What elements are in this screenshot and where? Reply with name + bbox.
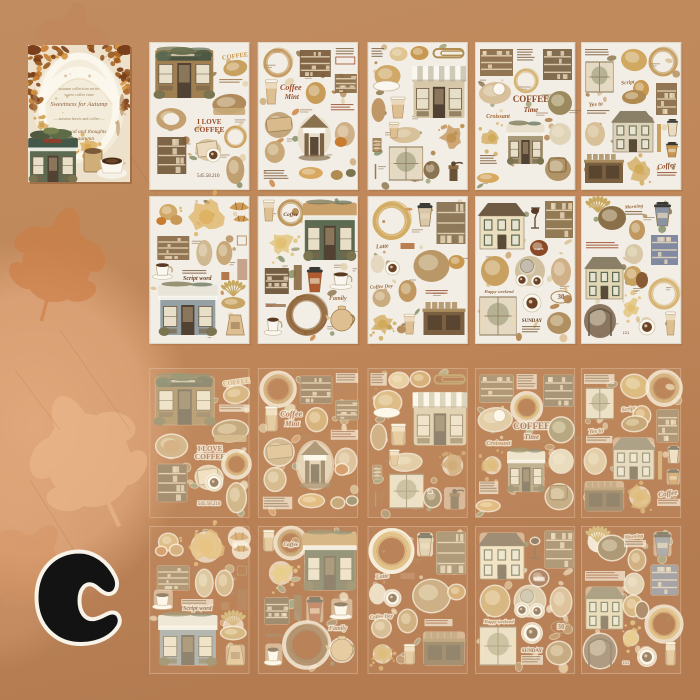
svg-text:COFFEE: COFFEE (194, 125, 224, 134)
svg-text:Happy weekend: Happy weekend (483, 619, 514, 624)
svg-text:Script word: Script word (183, 606, 213, 612)
svg-text:::::: :::: (623, 331, 630, 336)
svg-text:545.58.210: 545.58.210 (197, 174, 220, 179)
svg-text:Mint: Mint (284, 420, 300, 428)
svg-text:warm coffee time: warm coffee time (64, 92, 94, 97)
svg-text:Croissant: Croissant (486, 441, 510, 447)
svg-text:SUNDAY: SUNDAY (522, 319, 543, 324)
svg-text:SUNDAY: SUNDAY (522, 649, 543, 654)
svg-text:Yes to: Yes to (589, 101, 604, 108)
svg-text:CAFE: CAFE (534, 577, 544, 581)
svg-text:— autumn leaves and coffee —: — autumn leaves and coffee — (53, 116, 106, 121)
svg-text:S: S (426, 490, 432, 493)
svg-text:545.58.210: 545.58.210 (198, 501, 221, 507)
svg-text:S: S (426, 163, 431, 166)
svg-text:Family: Family (329, 296, 347, 302)
svg-text:Latte: Latte (375, 573, 389, 580)
svg-text:Mint: Mint (284, 93, 300, 101)
svg-text:::::: :::: (623, 661, 630, 666)
svg-text:Happy weekend: Happy weekend (483, 289, 514, 294)
svg-text:Time: Time (524, 106, 539, 114)
svg-text:Coffee: Coffee (283, 542, 298, 548)
svg-text:Latte: Latte (375, 243, 389, 250)
svg-text:Coffee: Coffee (280, 410, 302, 419)
svg-text:Croissant: Croissant (486, 114, 510, 120)
svg-text:Yes to: Yes to (589, 428, 604, 435)
svg-text:COFFEE: COFFEE (513, 94, 550, 104)
svg-text:COFFEE: COFFEE (513, 421, 550, 431)
svg-text:Time: Time (524, 433, 539, 441)
svg-text:Sweetness for Autumn: Sweetness for Autumn (50, 101, 107, 108)
svg-text:Script word: Script word (183, 276, 213, 282)
svg-text:Coffee: Coffee (280, 83, 302, 92)
svg-text:30: 30 (558, 293, 566, 301)
svg-text:Family: Family (329, 626, 347, 632)
svg-text:autumn collection series: autumn collection series (59, 86, 100, 91)
svg-text:COFFEE: COFFEE (195, 452, 226, 461)
svg-text:CAFE: CAFE (534, 247, 544, 251)
svg-text:Coffee: Coffee (283, 212, 298, 218)
svg-text:30: 30 (558, 623, 566, 631)
